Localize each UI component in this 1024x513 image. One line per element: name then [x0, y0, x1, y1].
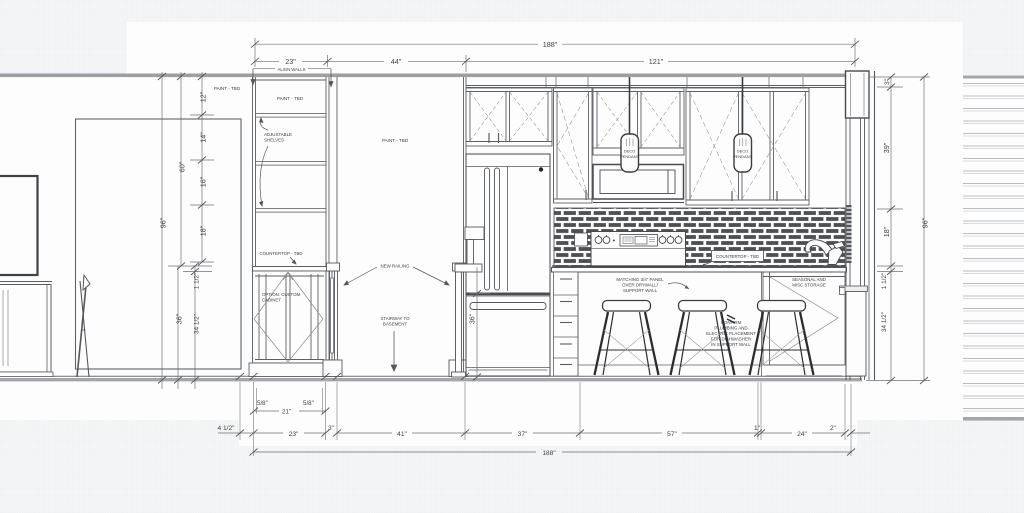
svg-text:IN SUPPORT WALL: IN SUPPORT WALL: [711, 342, 751, 347]
svg-text:2": 2": [830, 425, 837, 432]
svg-text:188": 188": [542, 450, 556, 457]
svg-text:STAIRWAY TO: STAIRWAY TO: [380, 316, 410, 321]
svg-text:5/8": 5/8": [303, 400, 314, 407]
svg-text:18": 18": [199, 225, 208, 236]
svg-text:3": 3": [328, 425, 335, 432]
svg-text:188": 188": [543, 40, 558, 49]
svg-text:BASEMENT: BASEMENT: [383, 322, 407, 327]
svg-text:16": 16": [199, 176, 208, 187]
svg-text:39": 39": [882, 142, 891, 153]
svg-text:PAINT - TBD: PAINT - TBD: [382, 138, 409, 143]
svg-text:18": 18": [882, 226, 891, 237]
svg-text:3": 3": [884, 78, 891, 85]
svg-text:4 1/2": 4 1/2": [217, 425, 235, 432]
svg-text:14": 14": [199, 132, 208, 143]
svg-text:COUNTERTOP - TBD: COUNTERTOP - TBD: [716, 254, 759, 259]
svg-text:ELECTRIC PLACEMENT: ELECTRIC PLACEMENT: [706, 331, 756, 336]
svg-text:44": 44": [391, 57, 402, 66]
svg-text:PENDANT: PENDANT: [733, 154, 753, 159]
svg-text:MATCHING 3/4" PANEL: MATCHING 3/4" PANEL: [616, 277, 664, 282]
svg-text:ALIGN WALLS: ALIGN WALLS: [278, 67, 306, 72]
svg-text:SEASONAL AND: SEASONAL AND: [792, 277, 826, 282]
svg-text:1": 1": [754, 425, 761, 432]
svg-text:5/8": 5/8": [257, 400, 268, 407]
svg-text:34 1/2": 34 1/2": [881, 312, 888, 332]
svg-text:1 1/2": 1 1/2": [881, 273, 888, 289]
svg-text:SUPPORT WALL: SUPPORT WALL: [623, 288, 658, 293]
svg-text:23": 23": [285, 57, 296, 66]
svg-text:57": 57": [667, 431, 677, 438]
svg-text:21": 21": [282, 409, 291, 416]
svg-text:PAINT - TBD: PAINT - TBD: [214, 86, 241, 91]
svg-text:36": 36": [470, 313, 477, 324]
svg-text:24": 24": [797, 431, 807, 438]
svg-text:DECO: DECO: [737, 149, 749, 154]
svg-text:96": 96": [921, 217, 930, 228]
svg-text:23": 23": [289, 431, 299, 438]
svg-text:SHELVES: SHELVES: [264, 138, 284, 143]
svg-text:PENDANT: PENDANT: [620, 154, 640, 159]
svg-text:34 1/2": 34 1/2": [194, 314, 201, 334]
svg-text:DECO: DECO: [624, 149, 636, 154]
svg-text:FOR DISHWASHER: FOR DISHWASHER: [711, 337, 751, 342]
svg-text:NEW RAILING: NEW RAILING: [380, 264, 410, 269]
svg-text:COUNTERTOP - TBD: COUNTERTOP - TBD: [259, 251, 302, 256]
svg-text:12": 12": [199, 91, 208, 102]
svg-text:121": 121": [649, 57, 664, 66]
svg-text:96": 96": [159, 217, 168, 228]
svg-text:41": 41": [397, 431, 407, 438]
svg-text:OPTION: CUSTOM: OPTION: CUSTOM: [262, 292, 301, 297]
svg-text:PLUMBING AND: PLUMBING AND: [714, 326, 747, 331]
svg-text:36": 36": [175, 313, 184, 324]
svg-text:37": 37": [518, 431, 528, 438]
svg-text:ADJUSTABLE: ADJUSTABLE: [264, 132, 292, 137]
svg-text:OVER DRYWALL/: OVER DRYWALL/: [622, 283, 659, 288]
svg-text:CABINET: CABINET: [262, 298, 281, 303]
svg-text:PAINT - TBD: PAINT - TBD: [277, 96, 304, 101]
svg-text:60": 60": [178, 161, 187, 172]
svg-text:MISC STORAGE: MISC STORAGE: [792, 283, 826, 288]
svg-text:1 1/2": 1 1/2": [194, 273, 201, 289]
